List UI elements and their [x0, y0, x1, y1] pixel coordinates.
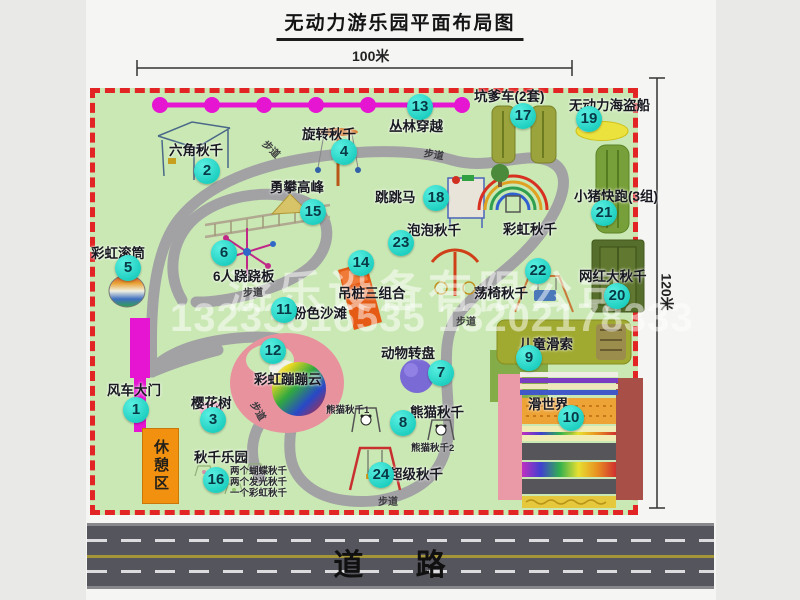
road: 道 路 [87, 523, 714, 589]
attraction-badge-9: 9 [516, 345, 542, 371]
attraction-label-22: 荡椅秋千 [474, 282, 528, 302]
attraction-badge-5: 5 [115, 255, 141, 281]
subblock-line: 两个发光秋千 [230, 477, 287, 488]
attraction-badge-21: 21 [591, 200, 617, 226]
attraction-badge-18: 18 [423, 185, 449, 211]
attraction-label-8: 熊猫秋千 [410, 401, 464, 421]
path-label-4: 步道 [456, 313, 476, 328]
attraction-badge-1: 1 [123, 397, 149, 423]
path-label-3: 步道 [243, 284, 263, 299]
attraction-badge-22: 22 [525, 258, 551, 284]
attraction-badge-3: 3 [200, 407, 226, 433]
attraction-label-18: 跳跳马 [375, 186, 416, 206]
attraction-label-24: 超级秋千 [389, 463, 443, 483]
attraction-badge-19: 19 [576, 106, 602, 132]
attraction-label-23: 泡泡秋千 [407, 219, 461, 239]
attraction-badge-17: 17 [510, 103, 536, 129]
attraction-badge-10: 10 [558, 405, 584, 431]
attraction-badge-4: 4 [331, 139, 357, 165]
attraction-subblock-16: 两个蝴蝶秋千两个发光秋千一个彩虹秋千 [230, 466, 287, 499]
attraction-label-14: 吊桩三组合 [338, 282, 406, 302]
attraction-label-6: 6人跷跷板 [213, 265, 275, 285]
attraction-badge-14: 14 [348, 250, 374, 276]
attraction-label-20: 网红大秋千 [579, 265, 647, 285]
attraction-label-2: 六角秋千 [169, 139, 223, 159]
attraction-badge-6: 6 [211, 240, 237, 266]
attraction-badge-16: 16 [203, 467, 229, 493]
attraction-sublabel-8-1: 熊猫秋千1 [326, 402, 369, 416]
attraction-badge-12: 12 [260, 338, 286, 364]
extra-label-1: 彩虹秋千 [503, 218, 557, 238]
attraction-badge-13: 13 [407, 94, 433, 120]
attraction-label-16: 秋千乐园 [194, 446, 248, 466]
attraction-badge-2: 2 [194, 158, 220, 184]
attraction-badge-24: 24 [368, 462, 394, 488]
rest-area-box: 休憩区 [142, 428, 179, 504]
attraction-badge-8: 8 [390, 410, 416, 436]
subblock-line: 两个蝴蝶秋千 [230, 466, 287, 477]
attraction-badge-11: 11 [271, 297, 297, 323]
width-dimension-label: 100米 [352, 46, 389, 66]
playground-plan: 无动力游乐园平面布局图 100米 120米 [0, 0, 800, 600]
attraction-label-7: 动物转盘 [381, 342, 435, 362]
path-label-2: 步道 [423, 144, 445, 162]
attraction-badge-20: 20 [604, 283, 630, 309]
attraction-label-11: 粉色沙滩 [293, 302, 347, 322]
subblock-line: 一个彩虹秋千 [230, 488, 287, 499]
attraction-label-17: 坑爹车(2套) [474, 85, 545, 105]
attraction-label-12: 彩虹蹦蹦云 [254, 368, 322, 388]
attraction-label-21: 小猪快跑(3组) [574, 185, 658, 205]
attraction-label-1: 风车大门 [107, 379, 161, 399]
attraction-badge-15: 15 [300, 199, 326, 225]
rest-area-label: 休憩区 [150, 439, 171, 493]
path-label-5: 步道 [378, 493, 398, 508]
right-margin-band [716, 0, 800, 600]
left-margin-band [0, 0, 86, 600]
attraction-badge-7: 7 [428, 360, 454, 386]
attraction-badge-23: 23 [388, 230, 414, 256]
attraction-label-15: 勇攀高峰 [270, 176, 324, 196]
road-label: 道 路 [87, 540, 714, 584]
attraction-sublabel-8-2: 熊猫秋千2 [411, 440, 454, 454]
page-title: 无动力游乐园平面布局图 [276, 8, 523, 41]
